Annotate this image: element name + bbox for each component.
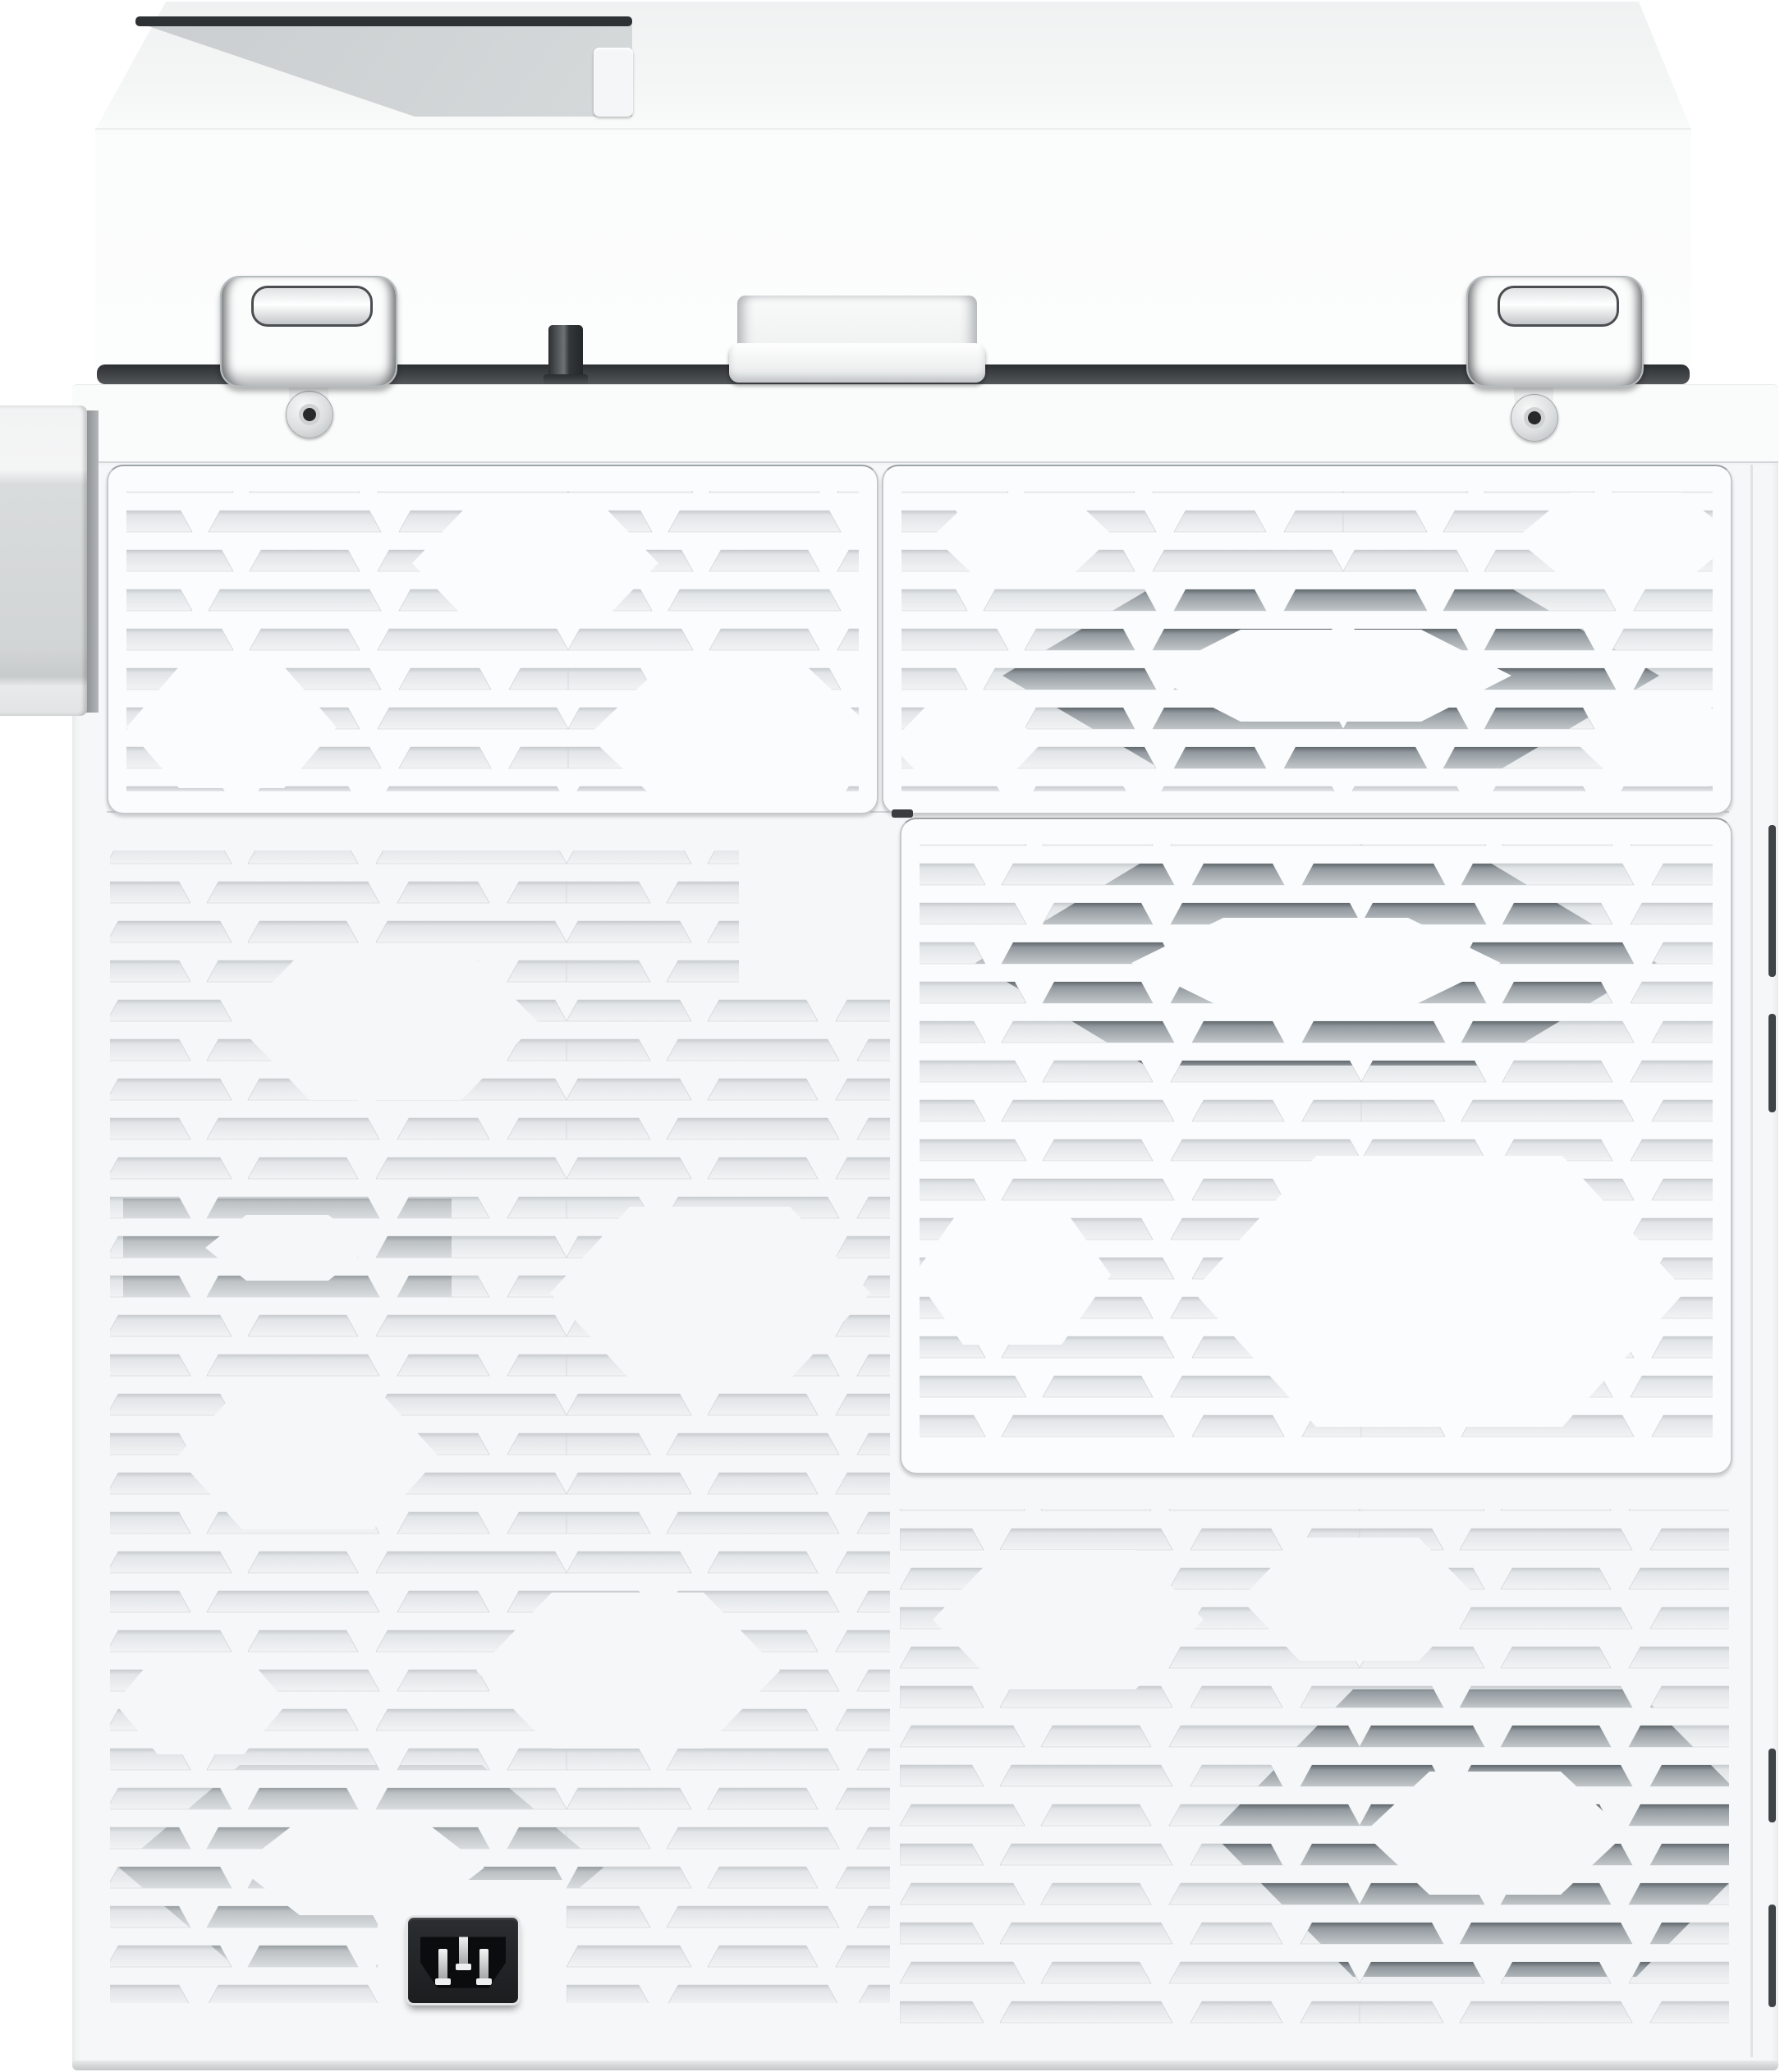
right-screw-hole — [1528, 411, 1541, 424]
upper-left-vent-pattern — [108, 466, 877, 813]
printer-rear-photo — [0, 0, 1789, 2072]
ground-pin-base — [456, 1964, 471, 1970]
right-edge-groove — [1750, 465, 1753, 2057]
bottom-right-vent-pattern — [900, 1484, 1729, 2059]
right-edge-vent-slot — [1768, 1905, 1776, 2007]
base-edge — [72, 2061, 1778, 2070]
left-side-protrusion — [0, 406, 87, 716]
right-edge-vent-slot — [1768, 825, 1776, 977]
left-hinge-pin — [251, 286, 373, 327]
right-lid-hinge — [1466, 276, 1644, 387]
ground-pin — [459, 1936, 468, 1967]
upper-left-vent-panel — [107, 465, 878, 814]
lid-top-crease — [95, 128, 1691, 130]
power-inlet — [408, 1918, 518, 2003]
line-pin — [438, 1949, 447, 1982]
upper-right-vent-panel — [882, 465, 1732, 814]
lower-left-vent-pattern — [107, 837, 893, 2028]
neutral-pin-base — [476, 1978, 492, 1985]
lid-latch-lever — [548, 325, 583, 378]
right-screw — [1511, 394, 1558, 442]
lower-left-vent-field — [107, 837, 893, 2028]
panel-seam-notch — [892, 809, 913, 818]
left-lid-hinge — [220, 276, 397, 387]
lift-handle-collar — [729, 343, 985, 383]
lid-latch-lever-base — [544, 374, 588, 384]
neutral-pin — [479, 1949, 489, 1982]
power-inlet-recess — [420, 1928, 506, 1995]
adf-paper-slot — [135, 16, 632, 26]
adf-paper-stop — [594, 48, 633, 117]
line-pin-base — [435, 1978, 451, 1985]
upper-right-vent-pattern — [883, 466, 1731, 813]
left-screw-hole — [303, 408, 316, 421]
lift-handle — [729, 296, 985, 383]
left-screw — [286, 391, 333, 438]
rear-access-panel-vent-pattern — [901, 819, 1731, 1473]
right-edge-vent-slot — [1768, 1014, 1776, 1112]
right-edge-vent-slot — [1768, 1749, 1776, 1822]
rear-access-panel — [900, 818, 1732, 1474]
right-hinge-pin — [1498, 286, 1619, 327]
bottom-right-vent-field — [900, 1484, 1729, 2059]
